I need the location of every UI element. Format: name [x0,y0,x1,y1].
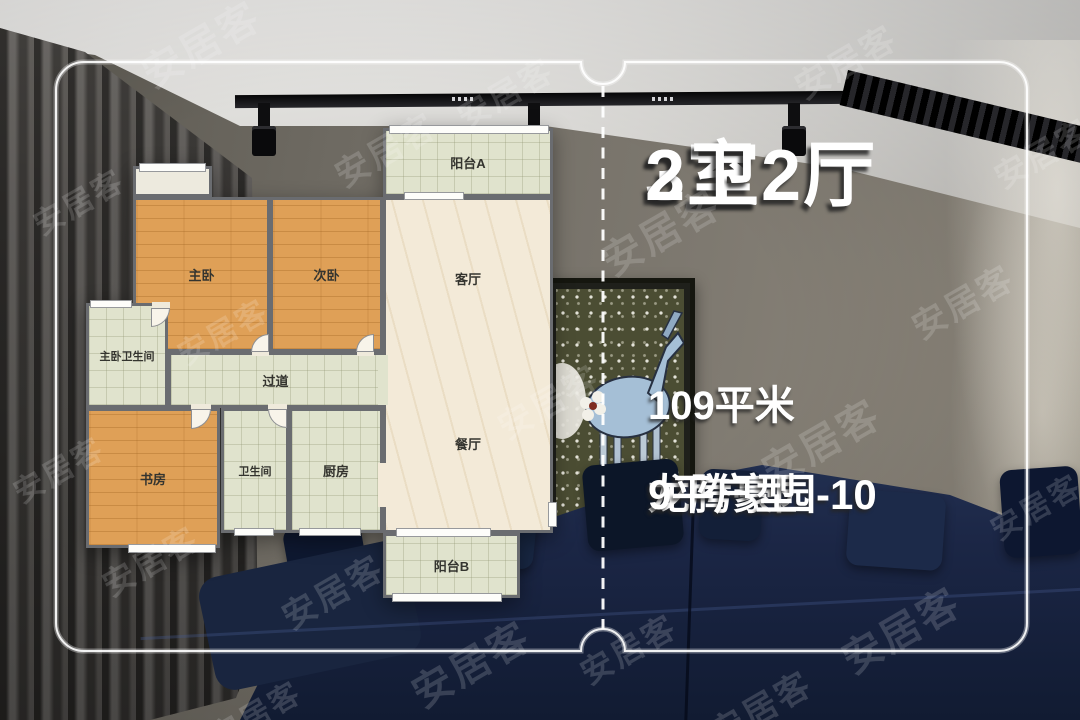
frame-border [56,62,1027,651]
area-text: 109平米 [648,383,795,429]
estate-name-line2: 9平户型 [648,468,797,521]
ticket-frame [0,0,1080,720]
frame-glow [56,62,1027,651]
property-listing-image: 阳台A 客厅 餐厅 主卧 次卧 主卧卫生间 过道 书房 卫生间 厨房 阳台B [0,0,1080,720]
layout-title-line2: 2卫 [645,128,761,225]
